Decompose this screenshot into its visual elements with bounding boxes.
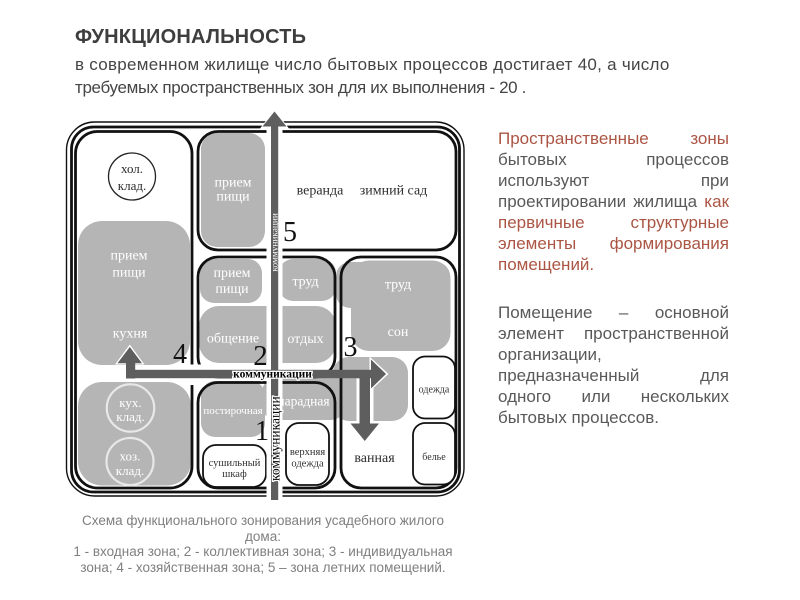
svg-text:хол.: хол. — [121, 161, 143, 176]
svg-text:прием: прием — [213, 266, 250, 281]
svg-text:одежда: одежда — [419, 385, 450, 396]
svg-text:пищи: пищи — [215, 282, 249, 297]
svg-text:постирочная: постирочная — [203, 405, 262, 417]
svg-text:одежда: одежда — [291, 459, 324, 470]
svg-text:клад.: клад. — [118, 178, 146, 193]
svg-text:ванная: ванная — [354, 451, 395, 466]
svg-text:клад.: клад. — [116, 409, 144, 424]
svg-text:белье: белье — [422, 452, 446, 463]
svg-text:зимний сад: зимний сад — [360, 184, 428, 199]
svg-text:веранда: веранда — [297, 184, 345, 199]
svg-text:прием: прием — [110, 249, 147, 264]
svg-text:1: 1 — [255, 416, 269, 447]
svg-text:пищи: пищи — [112, 266, 146, 281]
svg-text:коммуникации: коммуникации — [268, 396, 283, 481]
svg-text:2: 2 — [253, 340, 268, 372]
svg-text:5: 5 — [283, 217, 297, 248]
svg-text:пищи: пищи — [216, 190, 250, 205]
svg-text:шкаф: шкаф — [222, 469, 247, 480]
svg-text:верхняя: верхняя — [290, 447, 326, 458]
svg-text:4: 4 — [173, 339, 187, 370]
svg-text:труд: труд — [292, 275, 318, 290]
svg-text:3: 3 — [344, 332, 358, 363]
svg-text:сушильный: сушильный — [209, 458, 261, 469]
svg-text:хоз.: хоз. — [120, 449, 141, 464]
svg-text:коммуникации: коммуникации — [233, 369, 312, 381]
svg-text:общение: общение — [207, 332, 259, 347]
svg-text:парадная: парадная — [277, 394, 329, 409]
svg-text:кухня: кухня — [113, 327, 148, 342]
svg-text:прием: прием — [214, 176, 251, 191]
svg-text:труд: труд — [385, 278, 411, 293]
svg-text:клад.: клад. — [116, 463, 144, 478]
svg-text:кух.: кух. — [119, 395, 141, 410]
svg-text:коммуникации: коммуникации — [271, 213, 281, 271]
svg-text:отдых: отдых — [287, 332, 323, 347]
svg-text:сон: сон — [388, 325, 409, 340]
